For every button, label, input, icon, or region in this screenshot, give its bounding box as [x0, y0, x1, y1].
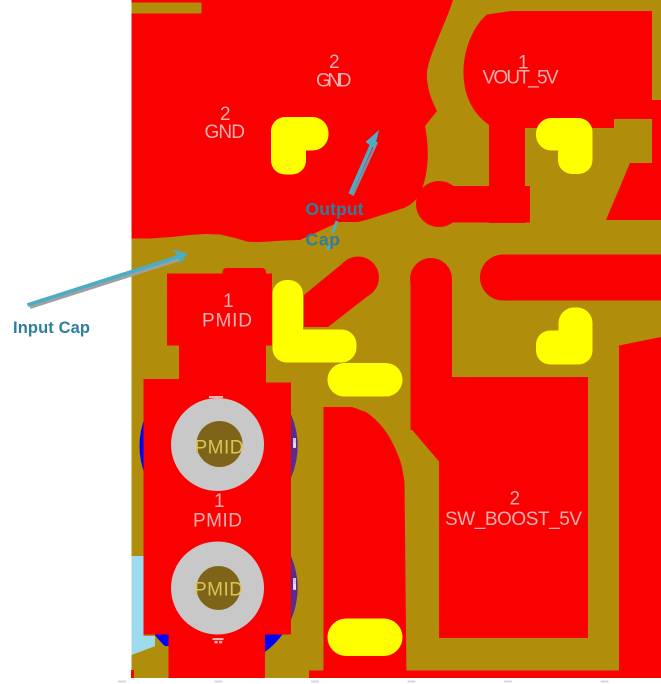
svg-text:1: 1: [214, 491, 225, 512]
svg-text:VOUT_5V: VOUT_5V: [483, 68, 559, 89]
svg-text:PMID: PMID: [195, 438, 244, 459]
svg-text:PMID: PMID: [193, 511, 242, 532]
svg-text:2: 2: [510, 489, 521, 510]
svg-text:GND: GND: [205, 122, 246, 143]
svg-text:Output: Output: [306, 199, 364, 219]
svg-text:Cap: Cap: [306, 230, 341, 250]
svg-text:SW_BOOST_5V: SW_BOOST_5V: [445, 509, 582, 530]
svg-text:Input Cap: Input Cap: [13, 319, 90, 337]
svg-text:GND: GND: [316, 71, 352, 92]
svg-text:PMID: PMID: [202, 311, 252, 332]
svg-text:1: 1: [223, 291, 234, 312]
svg-text:PMID: PMID: [194, 580, 243, 601]
